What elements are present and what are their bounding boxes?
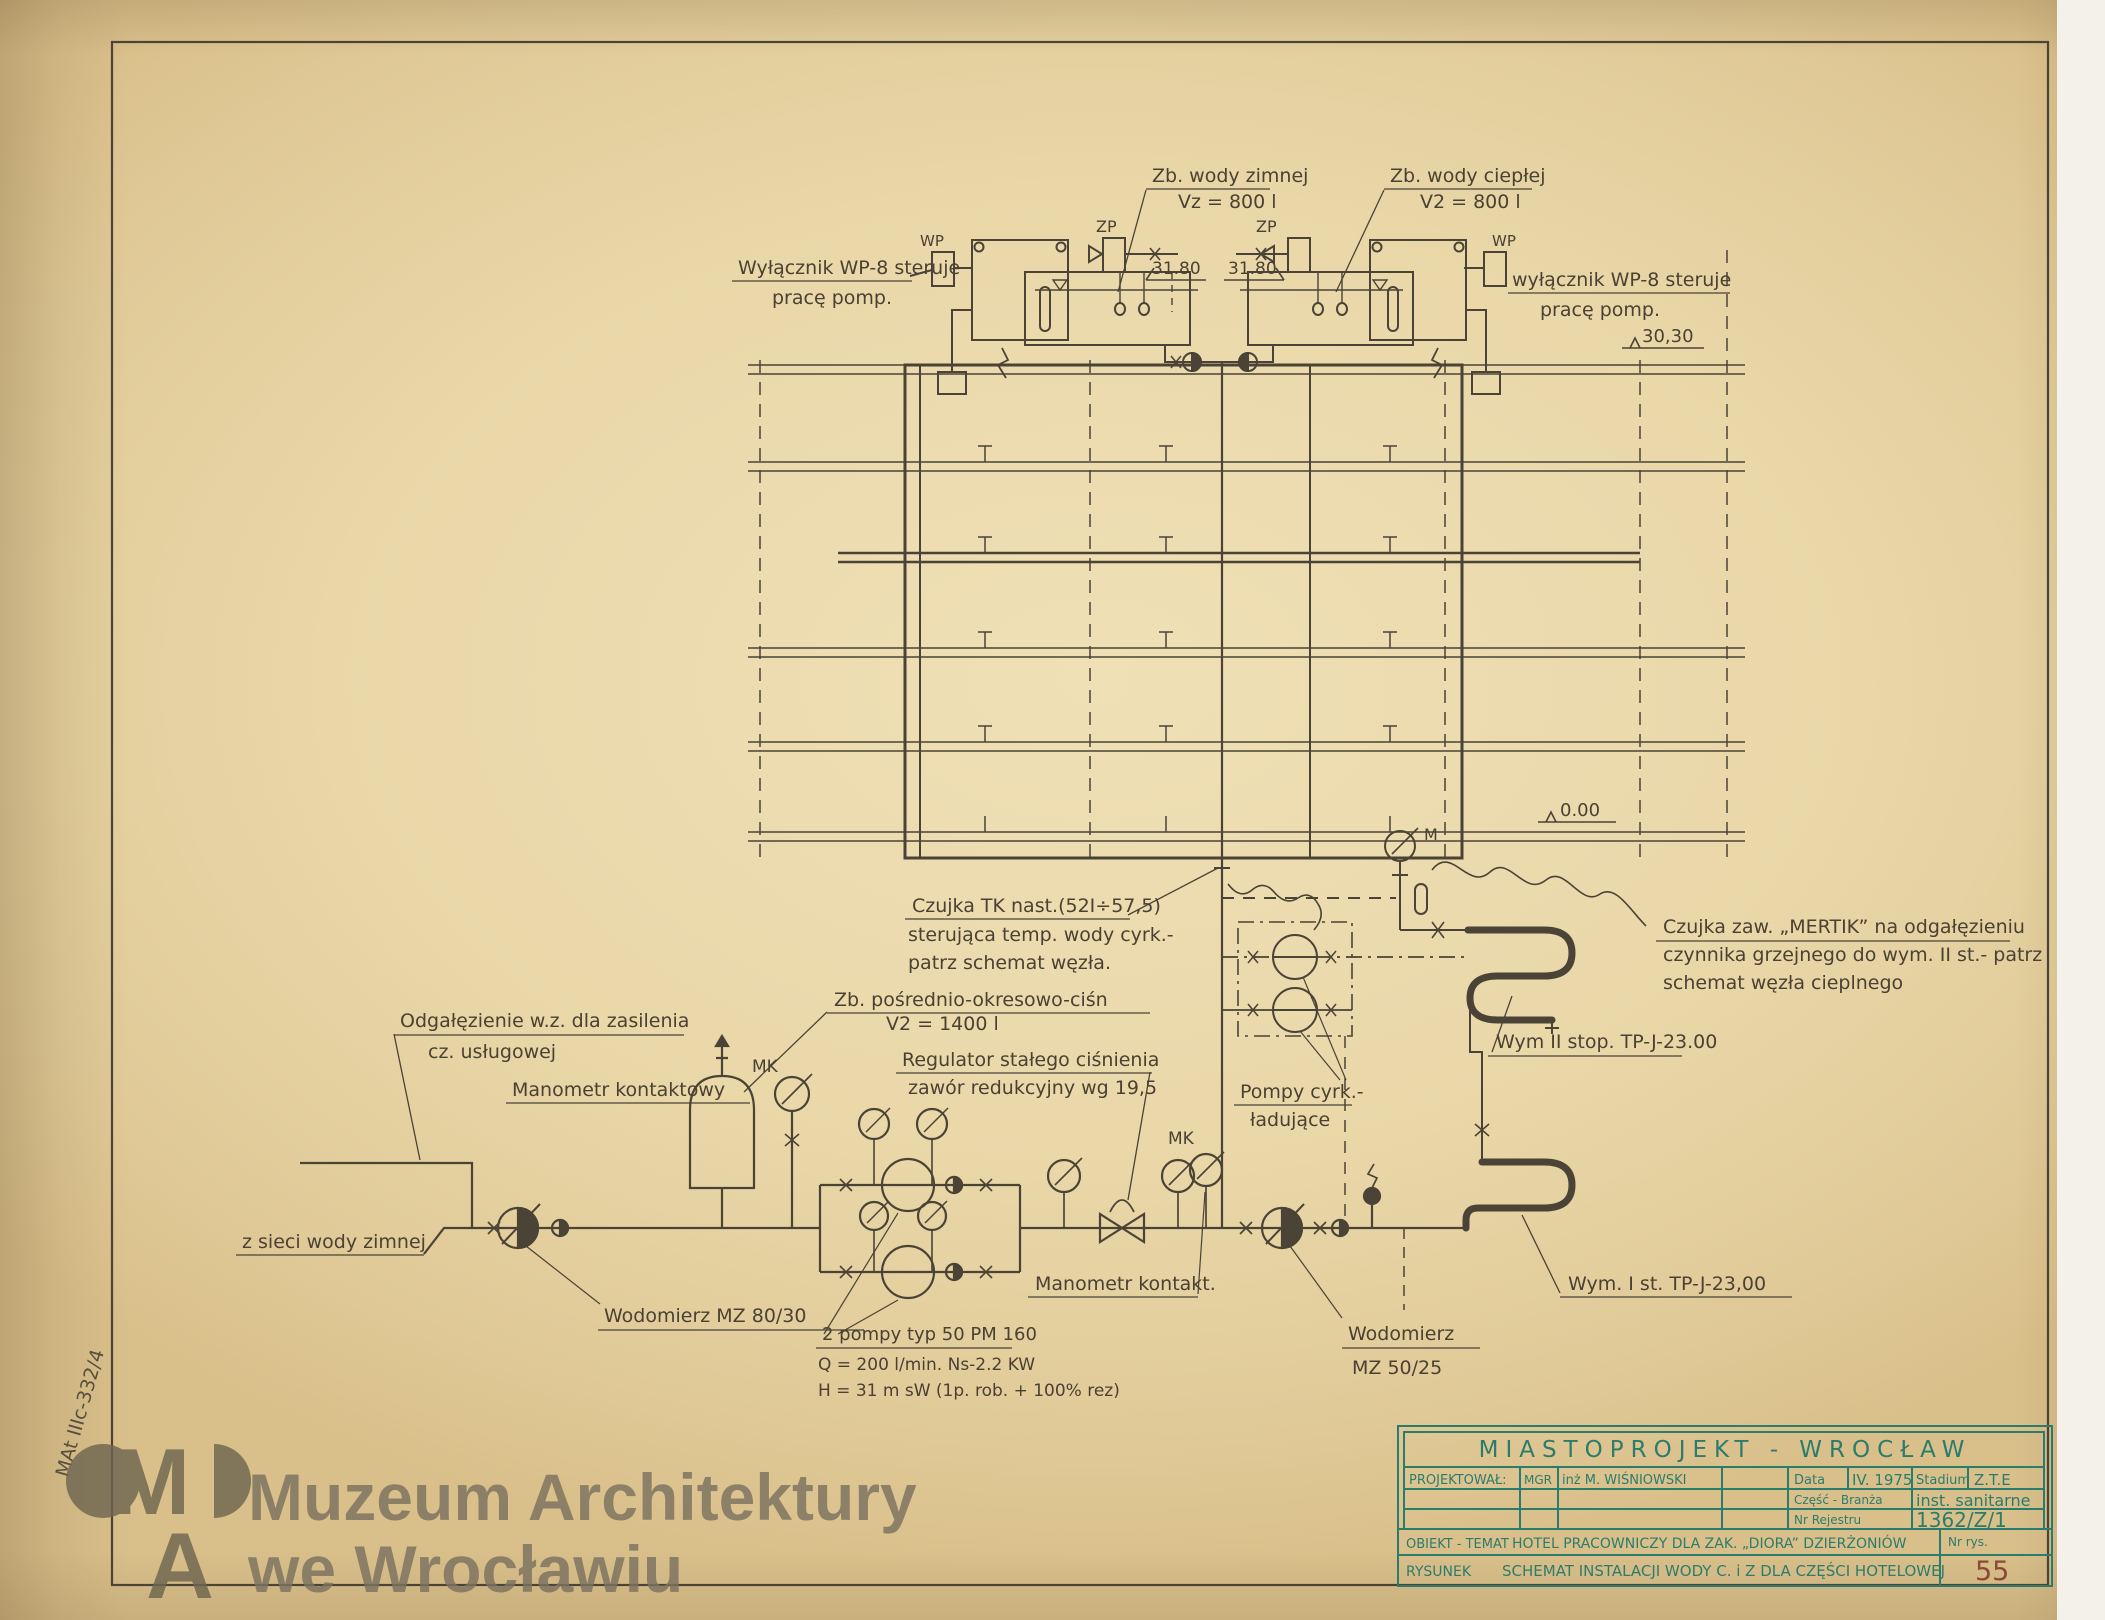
wp-switch-right <box>1464 252 1506 286</box>
label-exchanger-2: Wym II stop. TP-J-23.00 <box>1496 1031 1717 1053</box>
field-stadium-label: Stadium <box>1916 1473 1970 1488</box>
tank-feed-pipes <box>1165 345 1273 371</box>
label-mertik-2: czynnika grzejnego do wym. II st.- patrz <box>1663 944 2042 966</box>
label-wp-right: WP <box>1492 232 1516 250</box>
cold-water-tank <box>1025 272 1198 345</box>
field-rysunek-value: SCHEMAT INSTALACJI WODY C. i Z DLA CZĘŚC… <box>1502 1561 1945 1580</box>
label-switch-right-1: wyłącznik WP-8 steruje <box>1512 269 1731 291</box>
reducing-valve-group <box>1048 1158 1196 1242</box>
label-mertik-3: schemat węzła cieplnego <box>1663 972 1903 994</box>
water-meter-1 <box>498 1204 600 1304</box>
title-header: MIASTOPROJEKT - WROCŁAW <box>1479 1437 1972 1463</box>
pump-block <box>820 1108 1020 1334</box>
circulating-pumps <box>1222 922 1468 1080</box>
sheet-frame <box>112 42 2048 1585</box>
m-gauge-assembly <box>1385 828 1468 938</box>
roof-tanks <box>910 238 1506 394</box>
label-tk-3: patrz schemat węzła. <box>908 952 1111 974</box>
label-meter-2a: Wodomierz <box>1348 1323 1454 1345</box>
label-tank-hot: Zb. wody ciepłej <box>1390 165 1546 187</box>
building-grid <box>748 250 1745 858</box>
label-tank-cold: Zb. wody zimnej <box>1152 165 1308 187</box>
label-circ-pumps-1: Pompy cyrk.- <box>1240 1081 1364 1103</box>
pressure-vessel <box>690 1036 754 1228</box>
water-level-mark <box>1053 280 1067 290</box>
field-rysunek-label: RYSUNEK <box>1406 1564 1472 1580</box>
hot-water-tank <box>1240 272 1413 345</box>
label-manometer-1: Manometr kontaktowy <box>512 1079 725 1101</box>
field-nr-rys-value: 55 <box>1975 1556 2009 1587</box>
label-supply: z sieci wody zimnej <box>242 1231 426 1253</box>
label-mk-2: MK <box>1168 1129 1195 1149</box>
label-vessel-2: V2 = 1400 l <box>886 1013 999 1035</box>
vent-drain <box>1364 1164 1404 1310</box>
field-projektowal-name: inż M. WIŚNIOWSKI <box>1562 1472 1686 1488</box>
field-obiekt-value: HOTEL PRACOWNICZY DLA ZAK. „DIORA” DZIER… <box>1512 1534 1907 1552</box>
label-tk-2: sterująca temp. wody cyrk.- <box>908 924 1174 946</box>
water-meter-2 <box>1240 1204 1348 1318</box>
building-outline <box>905 365 1462 858</box>
label-regulator-2: zawór redukcyjny wg 19,5 <box>908 1077 1157 1099</box>
label-branch-2: cz. usługowej <box>428 1041 556 1063</box>
label-mk-1: MK <box>752 1057 779 1077</box>
label-wp-left: WP <box>920 232 944 250</box>
label-switch-left-1: Wyłącznik WP-8 steruje <box>738 257 960 279</box>
field-nr-rys-label: Nr rys. <box>1948 1535 1988 1549</box>
mertik-capillary <box>1432 862 1646 926</box>
elev-3180-left: 31.80 <box>1152 259 1201 279</box>
label-circ-pumps-2: ładujące <box>1250 1109 1330 1131</box>
watermark-line-1: Muzeum Architektury <box>248 1460 917 1534</box>
label-tank-hot-volume: V2 = 800 l <box>1420 191 1521 213</box>
label-tank-cold-volume: Vz = 800 l <box>1178 191 1277 213</box>
label-switch-left-2: pracę pomp. <box>772 287 892 309</box>
title-block: MIASTOPROJEKT - WROCŁAW PROJEKTOWAŁ: MGR… <box>1398 1426 2052 1587</box>
contact-manometer-1 <box>775 1074 812 1228</box>
label-zp-left: ZP <box>1096 217 1117 236</box>
scanner-backing <box>2057 0 2105 1620</box>
label-pumps-1: 2 pompy typ 50 PM 160 <box>822 1324 1037 1345</box>
schematic-svg: Zb. wody zimnej Vz = 800 l Zb. wody ciep… <box>0 0 2105 1620</box>
label-mertik-1: Czujka zaw. „MERTIK” na odgałęzieniu <box>1663 916 2025 938</box>
label-meter-1: Wodomierz MZ 80/30 <box>604 1305 807 1327</box>
watermark-line-2: we Wrocławiu <box>247 1532 683 1606</box>
field-projektowal-grade: MGR <box>1524 1473 1552 1487</box>
label-vessel-1: Zb. pośrednio-okresowo-ciśn <box>834 989 1108 1011</box>
label-manometer-2: Manometr kontakt. <box>1035 1273 1216 1295</box>
logo-halfdisc <box>214 1444 251 1518</box>
exchanger-I-coil <box>1466 1162 1572 1228</box>
elevation-flags <box>1146 268 1704 822</box>
elev-3030: 30,30 <box>1642 326 1694 347</box>
field-rejestr-label: Nr Rejestru <box>1794 1513 1861 1527</box>
museum-watermark: M A Muzeum Architektury we Wrocławiu <box>66 1429 917 1618</box>
label-zp-right: ZP <box>1256 217 1277 236</box>
interstage-pipe <box>1470 1009 1482 1162</box>
tk-capillary <box>1228 884 1321 930</box>
field-czesc-label: Część - Branża <box>1794 1493 1883 1507</box>
service-branch <box>300 1163 472 1228</box>
floor-lines <box>748 365 1745 841</box>
label-m-gauge: M <box>1424 825 1438 844</box>
label-meter-2b: MZ 50/25 <box>1352 1357 1442 1379</box>
exchanger-II-coil <box>1468 930 1572 1020</box>
label-pumps-3: H = 31 m sW (1p. rob. + 100% rez) <box>818 1381 1120 1401</box>
field-rejestr-value: 1362/Z/1 <box>1916 1508 2007 1532</box>
field-data-label: Data <box>1794 1473 1825 1488</box>
label-exchanger-1: Wym. I st. TP-J-23,00 <box>1568 1273 1766 1295</box>
main-line <box>424 1228 1466 1254</box>
label-switch-right-2: pracę pomp. <box>1540 299 1660 321</box>
label-regulator-1: Regulator stałego ciśnienia <box>902 1049 1159 1071</box>
water-level-mark <box>1373 280 1387 290</box>
label-branch-1: Odgałęzienie w.z. dla zasilenia <box>400 1010 689 1032</box>
elev-3180-right: 31.80 <box>1228 259 1277 279</box>
label-pumps-2: Q = 200 l/min. Ns-2.2 KW <box>818 1355 1035 1375</box>
logo-letter-a: A <box>146 1513 214 1618</box>
floor-stubs <box>978 446 1397 832</box>
heat-exchanger-circuit <box>1214 828 1646 1228</box>
scanned-drawing-sheet: Zb. wody zimnej Vz = 800 l Zb. wody ciep… <box>0 0 2105 1620</box>
annotations: Zb. wody zimnej Vz = 800 l Zb. wody ciep… <box>236 165 2042 1401</box>
field-data-value: IV. 1975 <box>1852 1471 1912 1489</box>
tank-stand-right <box>1370 240 1500 394</box>
field-stadium-value: Z.T.E <box>1974 1471 2011 1489</box>
elev-000: 0.00 <box>1560 800 1600 821</box>
field-obiekt-label: OBIEKT - TEMAT <box>1406 1537 1509 1552</box>
label-tk-1: Czujka TK nast.(52I÷57,5) <box>912 895 1161 917</box>
field-projektowal-label: PROJEKTOWAŁ: <box>1409 1473 1507 1488</box>
